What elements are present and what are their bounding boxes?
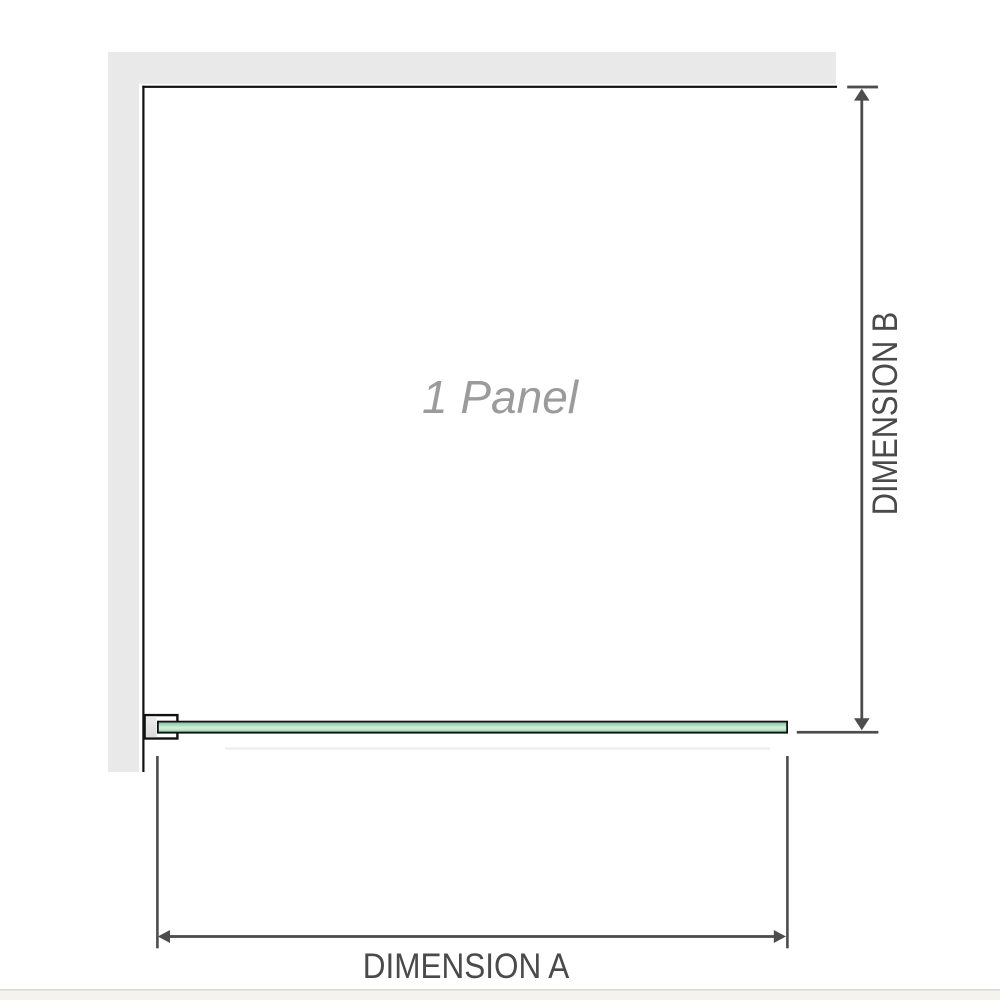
svg-text:1 Panel: 1 Panel: [422, 371, 580, 423]
svg-text:DIMENSION B: DIMENSION B: [865, 312, 904, 516]
svg-text:DIMENSION A: DIMENSION A: [363, 948, 570, 987]
